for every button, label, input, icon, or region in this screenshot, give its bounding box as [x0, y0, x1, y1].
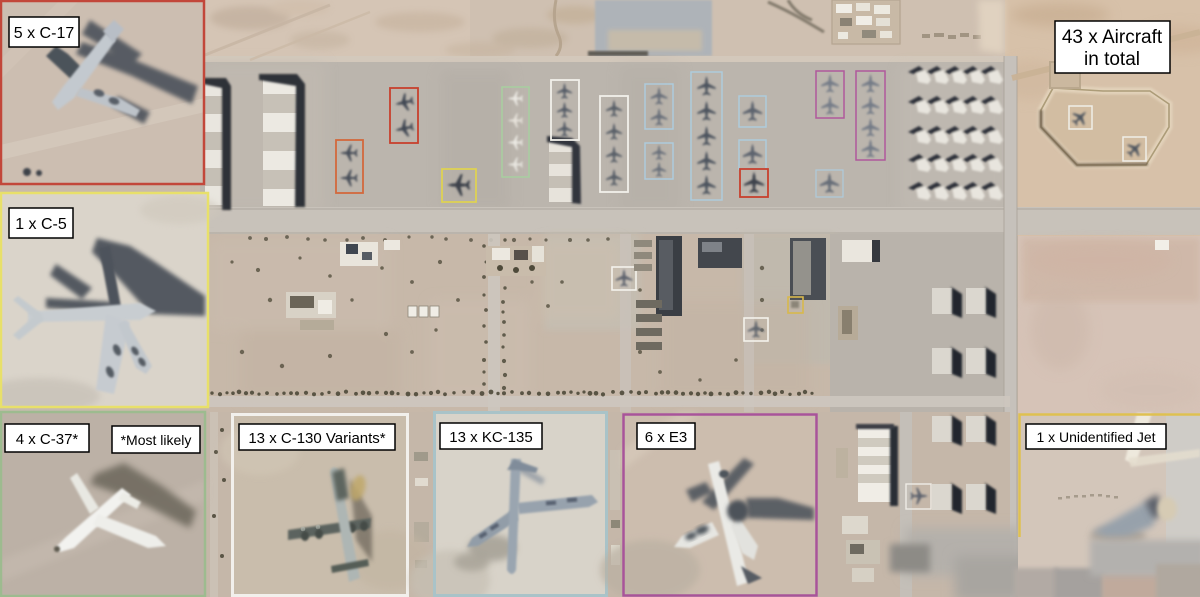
- svg-text:6 x E3: 6 x E3: [645, 429, 688, 446]
- svg-text:in total: in total: [1084, 49, 1140, 70]
- svg-text:1 x C-5: 1 x C-5: [15, 216, 67, 233]
- svg-text:5 x C-17: 5 x C-17: [14, 25, 75, 42]
- svg-text:*Most likely: *Most likely: [121, 432, 192, 448]
- svg-text:43 x Aircraft: 43 x Aircraft: [1062, 27, 1163, 48]
- svg-text:4 x C-37*: 4 x C-37*: [16, 431, 79, 448]
- svg-text:13 x KC-135: 13 x KC-135: [449, 429, 532, 446]
- svg-text:13 x C-130 Variants*: 13 x C-130 Variants*: [248, 430, 385, 447]
- svg-text:1 x Unidentified Jet: 1 x Unidentified Jet: [1036, 429, 1155, 445]
